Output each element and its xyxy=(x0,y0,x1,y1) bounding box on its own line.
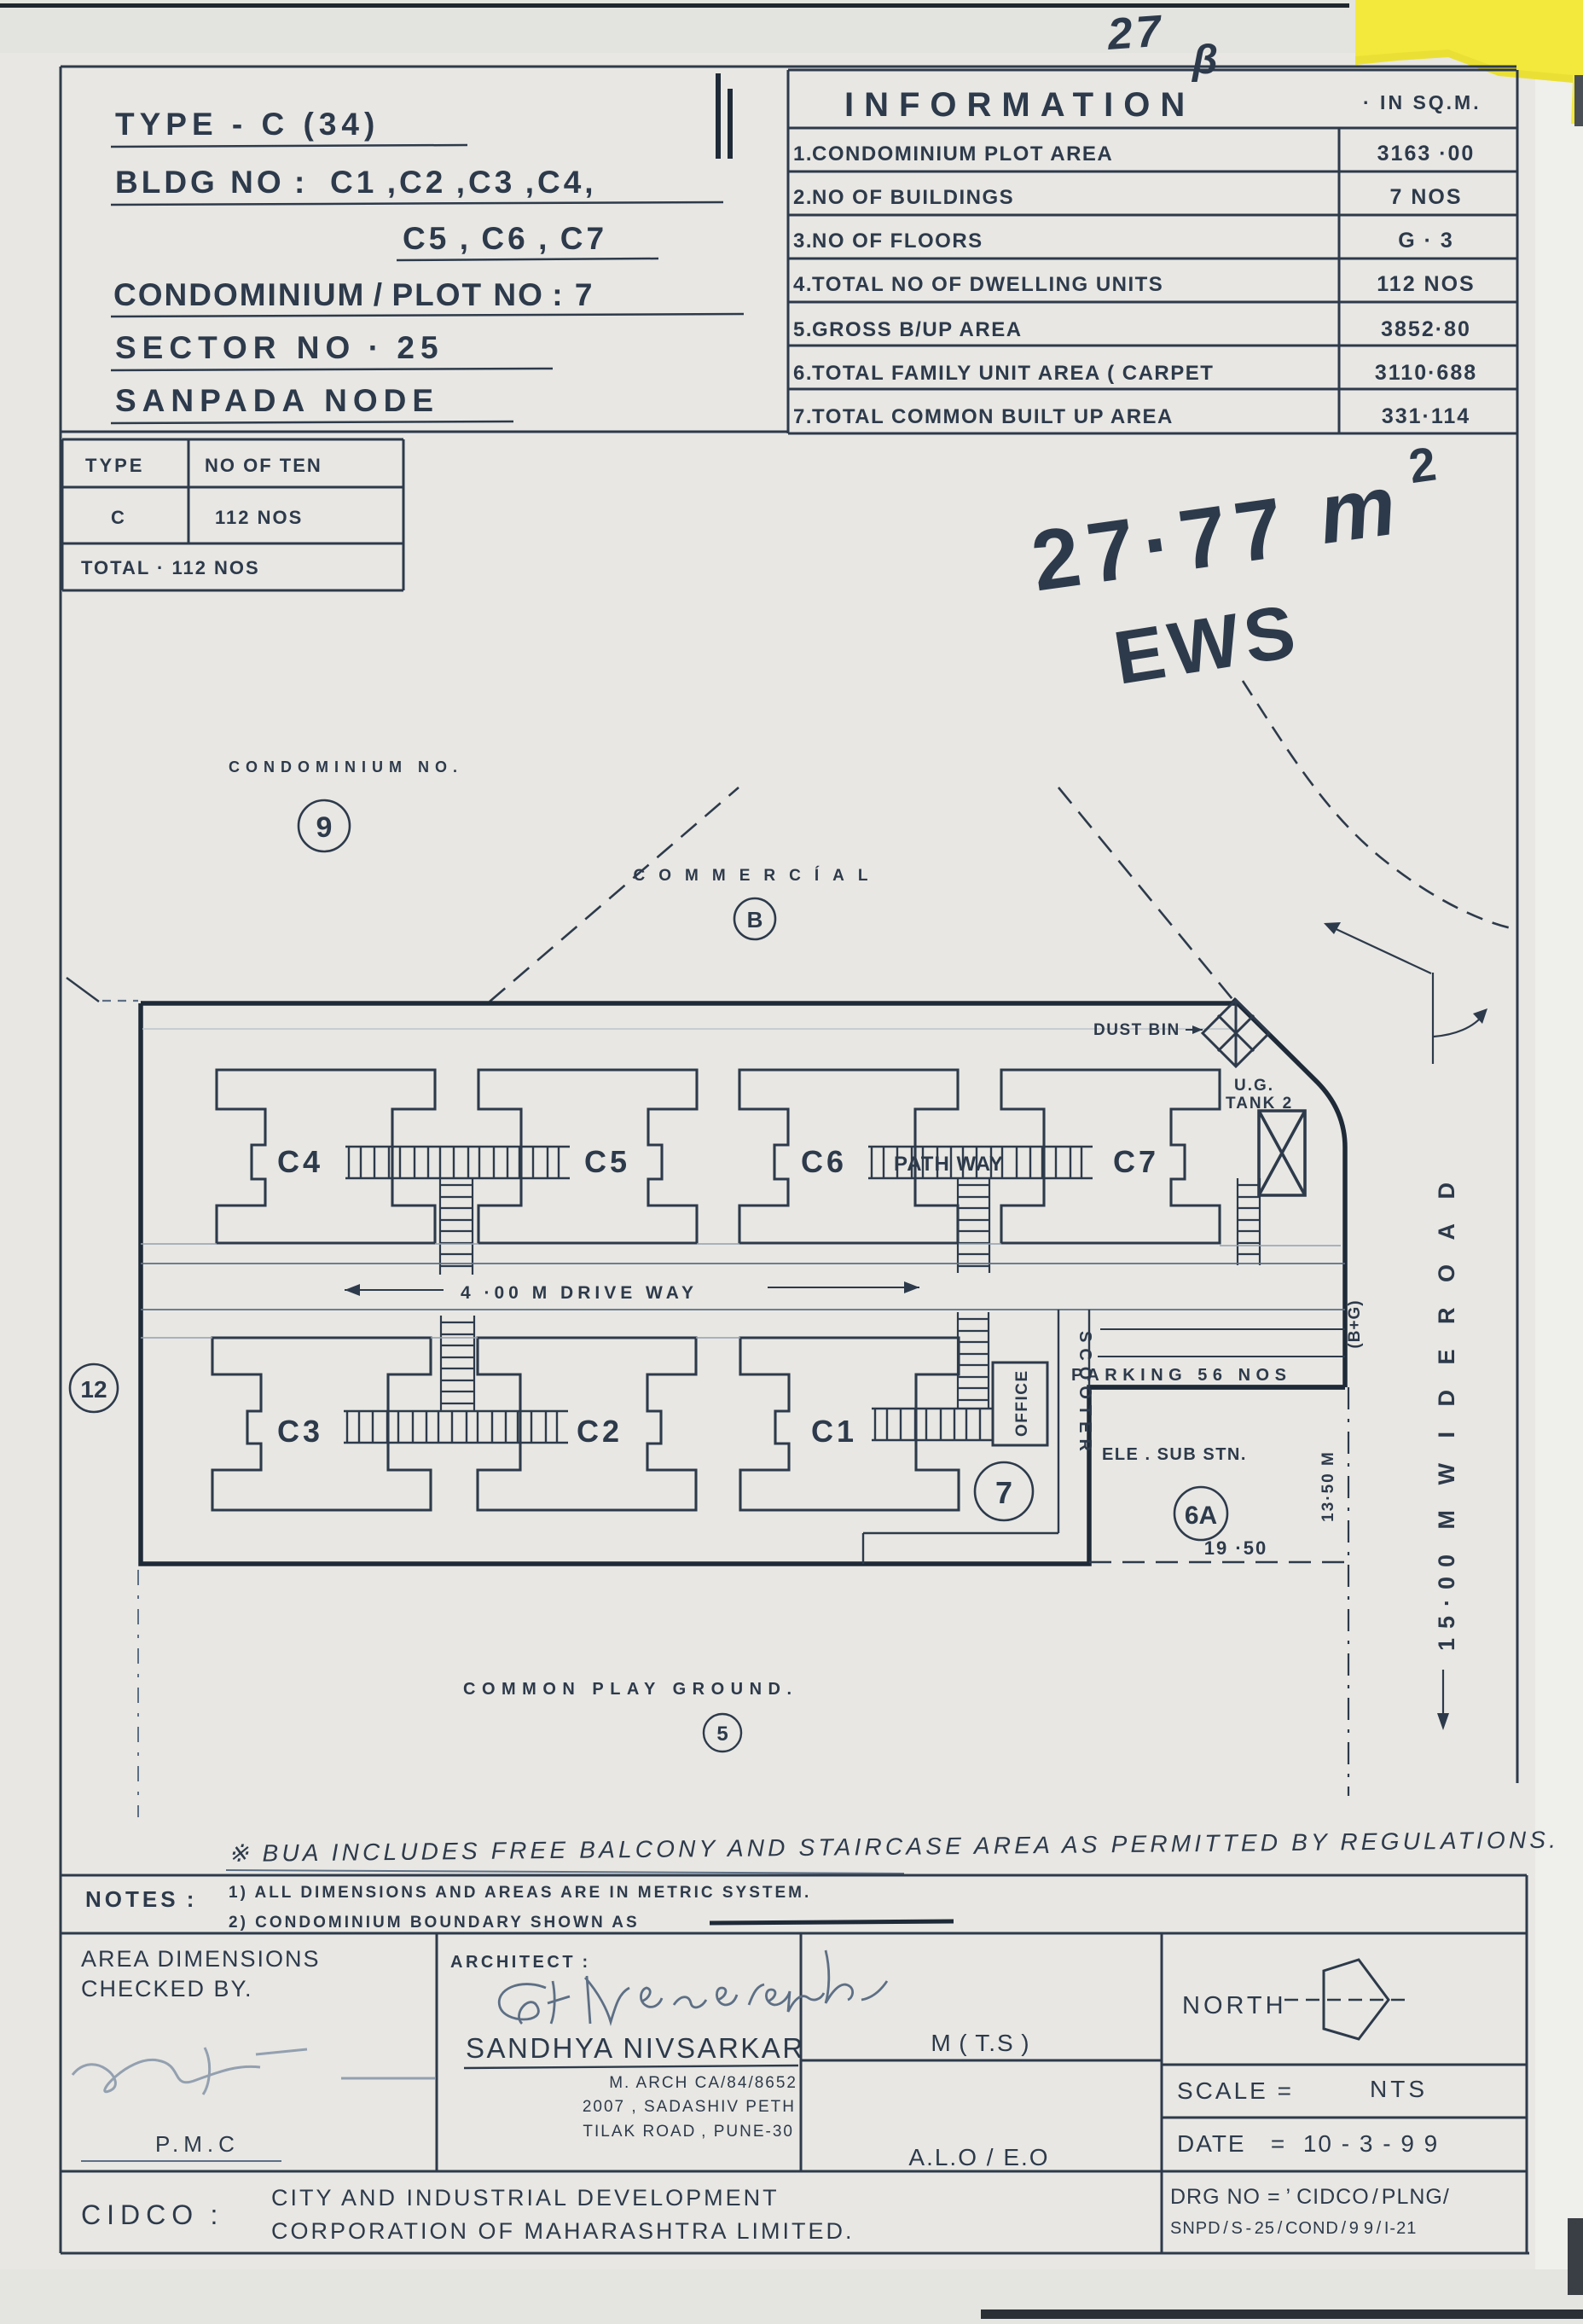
svg-text:2.: 2. xyxy=(793,186,813,209)
svg-text:3852·80: 3852·80 xyxy=(1381,317,1471,341)
svg-text:SCOOTER: SCOOTER xyxy=(1076,1331,1094,1457)
svg-text:SECTOR NO · 25: SECTOR NO · 25 xyxy=(115,330,444,365)
svg-text:COMMERCÍAL: COMMERCÍAL xyxy=(634,866,882,885)
svg-text:7 NOS: 7 NOS xyxy=(1389,185,1462,209)
svg-text:CIDCO :: CIDCO : xyxy=(81,2199,223,2230)
svg-text:5: 5 xyxy=(716,1723,728,1746)
svg-text:DATE = 10 - 3 - 9 9: DATE = 10 - 3 - 9 9 xyxy=(1177,2130,1439,2157)
svg-text:6A: 6A xyxy=(1185,1502,1217,1530)
svg-text:TOTAL NO OF DWELLING UNITS: TOTAL NO OF DWELLING UNITS xyxy=(812,273,1163,296)
svg-text:2 7: 2 7 xyxy=(1105,7,1164,60)
svg-text:NO OF TEN: NO OF TEN xyxy=(205,455,322,476)
svg-text:INFORMATION: INFORMATION xyxy=(844,86,1195,124)
svg-text:BLDG NO : C1 ,C2 ,C3 ,C4,: BLDG NO : C1 ,C2 ,C3 ,C4, xyxy=(115,165,597,200)
svg-text:TOTAL COMMON BUILT UP AREA: TOTAL COMMON BUILT UP AREA xyxy=(812,405,1174,428)
svg-text:12: 12 xyxy=(80,1376,107,1403)
svg-text:NTS: NTS xyxy=(1370,2076,1428,2102)
svg-text:6.: 6. xyxy=(793,362,813,385)
svg-text:CORPORATION OF MAHARASHTRA: CORPORATION OF MAHARASHTRA LIMITED. xyxy=(271,2218,855,2244)
svg-text:112 NOS: 112 NOS xyxy=(1377,272,1475,296)
svg-text:C4: C4 xyxy=(277,1144,323,1179)
svg-text:CONDOMINIUM / PLOT NO : 7: CONDOMINIUM / PLOT NO : 7 xyxy=(113,277,594,312)
svg-text:3.: 3. xyxy=(793,229,813,253)
svg-text:CHECKED BY.: CHECKED BY. xyxy=(81,1976,253,2002)
svg-text:m: m xyxy=(1313,457,1401,562)
svg-text:2) CONDOMINIUM BOUNDARY SHO: 2) CONDOMINIUM BOUNDARY SHOWN AS xyxy=(229,1914,640,1932)
svg-text:OFFICE: OFFICE xyxy=(1013,1369,1031,1437)
svg-text:9: 9 xyxy=(316,811,333,844)
svg-text:G · 3: G · 3 xyxy=(1398,229,1454,253)
svg-text:7.: 7. xyxy=(793,405,813,428)
svg-text:A.L.O / E.O: A.L.O / E.O xyxy=(908,2144,1049,2170)
svg-text:AREA DIMENSIONS: AREA DIMENSIONS xyxy=(81,1946,321,1972)
svg-text:C5 , C6 , C7: C5 , C6 , C7 xyxy=(403,221,607,256)
svg-text:ELE . SUB STN.: ELE . SUB STN. xyxy=(1102,1445,1247,1464)
svg-text:1) ALL DIMENSIONS AND AREA: 1) ALL DIMENSIONS AND AREAS ARE IN METRI… xyxy=(229,1884,811,1902)
svg-text:ARCHITECT :: ARCHITECT : xyxy=(450,1953,591,1972)
svg-text:SCALE =: SCALE = xyxy=(1177,2077,1294,2104)
svg-text:DUST BIN: DUST BIN xyxy=(1093,1021,1180,1039)
svg-text:3110·688: 3110·688 xyxy=(1375,361,1477,385)
svg-text:TYPE: TYPE xyxy=(85,455,144,476)
svg-text:DRG NO = ’ CIDCO / PLNG/: DRG NO = ’ CIDCO / PLNG/ xyxy=(1170,2185,1450,2209)
svg-text:NO OF FLOORS: NO OF FLOORS xyxy=(812,229,983,253)
svg-text:CONDOMINIUM NO.: CONDOMINIUM NO. xyxy=(229,758,463,776)
svg-text:2007 , SADASHIV PETH: 2007 , SADASHIV PETH xyxy=(583,2098,796,2116)
svg-text:CITY AND INDUSTRIAL DEVELOP: CITY AND INDUSTRIAL DEVELOPMENT xyxy=(271,2185,780,2211)
svg-text:C2: C2 xyxy=(577,1414,623,1449)
svg-text:B: B xyxy=(747,907,763,933)
svg-text:19 ·50: 19 ·50 xyxy=(1204,1537,1267,1559)
svg-text:13·50 M: 13·50 M xyxy=(1319,1450,1337,1522)
svg-text:C1: C1 xyxy=(811,1414,857,1449)
svg-text:3163 ·00: 3163 ·00 xyxy=(1377,142,1476,166)
svg-text:TOTAL · 112 NOS: TOTAL · 112 NOS xyxy=(81,557,260,578)
svg-text:PATH WAY: PATH WAY xyxy=(894,1153,1004,1176)
svg-text:CONDOMINIUM PLOT AREA: CONDOMINIUM PLOT AREA xyxy=(812,142,1113,166)
svg-text:C5: C5 xyxy=(584,1144,630,1179)
svg-text:M ( T.S ): M ( T.S ) xyxy=(931,2030,1030,2056)
svg-text:β: β xyxy=(1191,38,1218,83)
svg-text:NORTH: NORTH xyxy=(1182,1992,1287,2019)
svg-text:GROSS B/UP AREA: GROSS B/UP AREA xyxy=(812,318,1023,341)
svg-text:4 ·00 M DRIVE WAY: 4 ·00 M DRIVE WAY xyxy=(461,1283,698,1303)
svg-text:C: C xyxy=(111,507,126,528)
svg-text:COMMON PLAY GROUND.: COMMON PLAY GROUND. xyxy=(463,1680,798,1699)
svg-text:SNPD / S - 25 / COND / 9 9 / I: SNPD / S - 25 / COND / 9 9 / I-21 xyxy=(1170,2219,1417,2238)
svg-text:TOTAL FAMILY UNIT AREA ( CA: TOTAL FAMILY UNIT AREA ( CARPET xyxy=(812,362,1214,385)
svg-text:NOTES :: NOTES : xyxy=(85,1886,197,1912)
svg-text:· IN SQ.M.: · IN SQ.M. xyxy=(1363,91,1482,113)
svg-text:TYPE - C (34): TYPE - C (34) xyxy=(115,107,380,142)
svg-text:4.: 4. xyxy=(793,273,813,296)
svg-text:C6: C6 xyxy=(801,1144,847,1179)
svg-text:1.: 1. xyxy=(793,142,813,166)
svg-text:SANPADA NODE: SANPADA NODE xyxy=(115,383,439,418)
svg-text:(B+G): (B+G) xyxy=(1346,1299,1364,1348)
svg-text:P.M.C: P.M.C xyxy=(155,2131,240,2157)
svg-text:C7: C7 xyxy=(1113,1144,1159,1179)
svg-text:5.: 5. xyxy=(793,318,813,341)
svg-text:331·114: 331·114 xyxy=(1382,404,1470,428)
svg-text:U.G.: U.G. xyxy=(1234,1077,1274,1095)
svg-text:NO OF BUILDINGS: NO OF BUILDINGS xyxy=(812,186,1014,209)
svg-text:7: 7 xyxy=(995,1475,1012,1510)
svg-text:M. ARCH CA/84/8652: M. ARCH CA/84/8652 xyxy=(609,2074,797,2092)
svg-text:PARKING 56 NOS: PARKING 56 NOS xyxy=(1071,1366,1291,1385)
svg-text:112 NOS: 112 NOS xyxy=(215,507,303,528)
svg-text:TILAK ROAD , PUNE-30: TILAK ROAD , PUNE-30 xyxy=(583,2123,794,2141)
svg-text:15·00 M W I D E R O A D: 15·00 M W I D E R O A D xyxy=(1434,1173,1459,1651)
svg-text:C3: C3 xyxy=(277,1414,323,1449)
svg-text:SANDHYA NIVSARKAR: SANDHYA NIVSARKAR xyxy=(466,2032,805,2064)
